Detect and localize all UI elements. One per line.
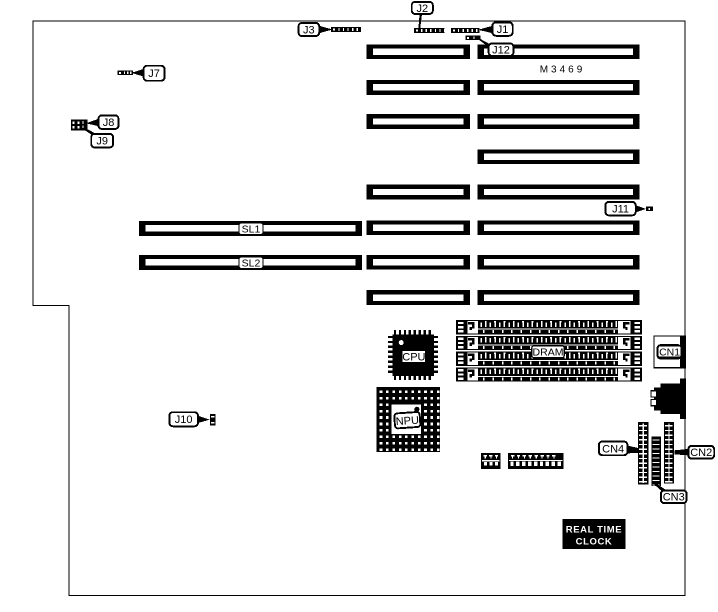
- svg-text:J10: J10: [175, 414, 193, 426]
- svg-text:DRAM: DRAM: [533, 346, 564, 358]
- svg-text:J11: J11: [612, 204, 629, 216]
- svg-text:J9: J9: [96, 136, 108, 148]
- svg-text:CPU: CPU: [402, 351, 425, 363]
- svg-text:SL1: SL1: [242, 224, 261, 236]
- svg-text:CN4: CN4: [602, 443, 624, 455]
- svg-text:M3469: M3469: [540, 65, 586, 76]
- svg-text:REAL TIME: REAL TIME: [566, 524, 622, 535]
- svg-text:CN1: CN1: [659, 346, 680, 358]
- svg-text:J2: J2: [416, 3, 428, 15]
- svg-text:NPU: NPU: [395, 415, 419, 429]
- svg-text:J12: J12: [492, 45, 510, 57]
- svg-text:J7: J7: [148, 68, 160, 80]
- svg-text:SL2: SL2: [242, 258, 261, 270]
- svg-text:J1: J1: [497, 24, 509, 36]
- svg-text:J8: J8: [103, 117, 115, 129]
- svg-text:CN2: CN2: [690, 447, 712, 459]
- svg-text:CLOCK: CLOCK: [576, 536, 613, 547]
- svg-text:CN3: CN3: [663, 492, 685, 504]
- svg-text:J3: J3: [303, 24, 315, 36]
